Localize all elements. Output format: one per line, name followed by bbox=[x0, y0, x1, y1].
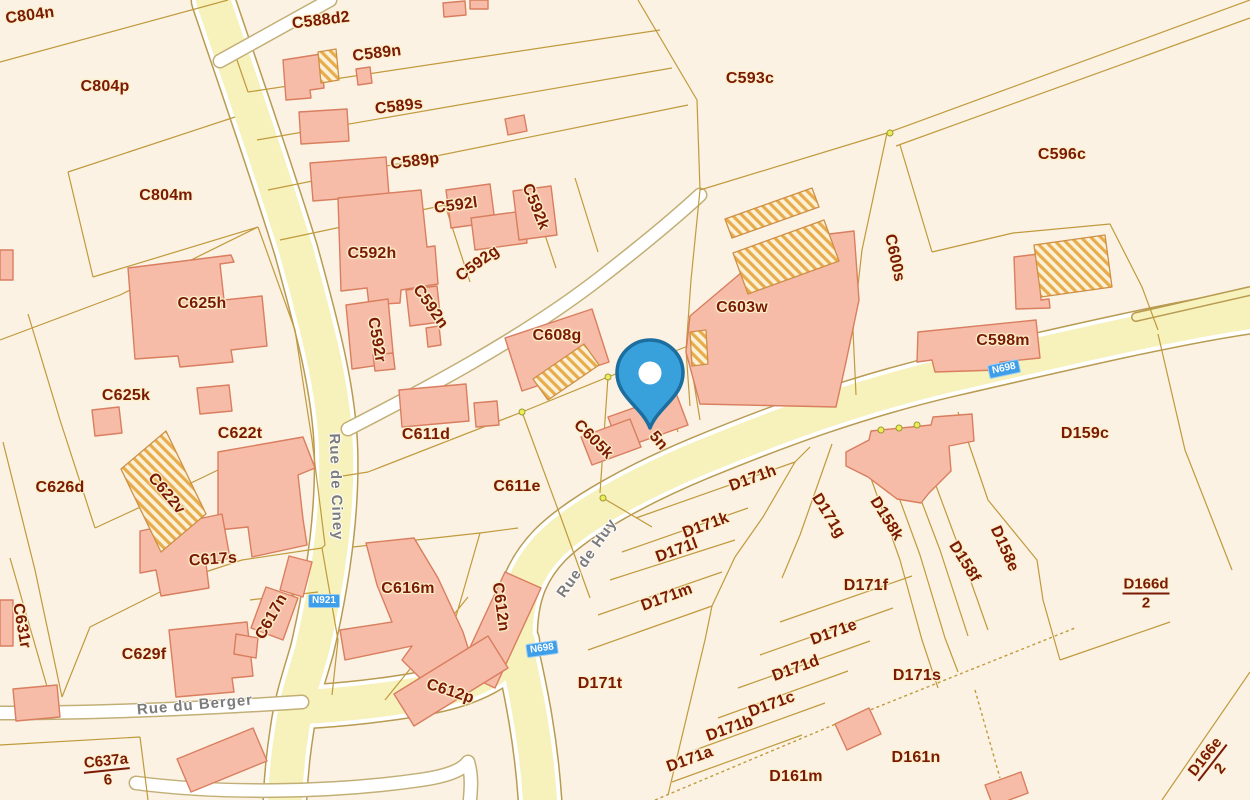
building-footprint bbox=[0, 600, 13, 646]
parcel-vertex-dot bbox=[914, 422, 920, 428]
building-footprint bbox=[846, 414, 974, 503]
hatched-building-footprint bbox=[318, 49, 339, 83]
building-footprint bbox=[299, 109, 349, 144]
building-footprint bbox=[128, 255, 267, 367]
parcel-vertex-dot bbox=[887, 130, 893, 136]
parcel-vertex-dot bbox=[896, 425, 902, 431]
building-footprint bbox=[513, 186, 557, 240]
building-footprint bbox=[505, 115, 527, 135]
building-footprint bbox=[251, 587, 298, 640]
building-footprint bbox=[426, 326, 441, 347]
building-footprint bbox=[474, 401, 499, 427]
building-footprint bbox=[443, 1, 466, 17]
building-footprint bbox=[197, 385, 232, 414]
location-pin-icon[interactable] bbox=[600, 335, 700, 445]
building-footprint bbox=[92, 407, 122, 436]
cadastral-map-viewport[interactable]: C804nC804pC804mC588d2C589nC589sC589pC592… bbox=[0, 0, 1250, 800]
pin-hole bbox=[639, 362, 662, 385]
building-footprint bbox=[13, 685, 60, 721]
building-footprint bbox=[470, 0, 488, 9]
building-footprint bbox=[169, 622, 253, 697]
parcel-vertex-dot bbox=[519, 409, 525, 415]
parcel-vertex-dot bbox=[878, 427, 884, 433]
building-footprint bbox=[373, 353, 395, 371]
building-footprint bbox=[399, 384, 469, 427]
building-footprint bbox=[356, 67, 372, 85]
building-footprint bbox=[234, 634, 258, 658]
parcel-vertex-dot bbox=[600, 495, 606, 501]
building-footprint bbox=[0, 250, 13, 280]
building-footprint bbox=[835, 708, 881, 750]
hatched-building-footprint bbox=[1034, 235, 1112, 297]
building-footprint bbox=[283, 54, 324, 100]
building-footprint bbox=[985, 772, 1028, 800]
building-footprint bbox=[218, 437, 315, 557]
building-footprint bbox=[406, 286, 441, 326]
